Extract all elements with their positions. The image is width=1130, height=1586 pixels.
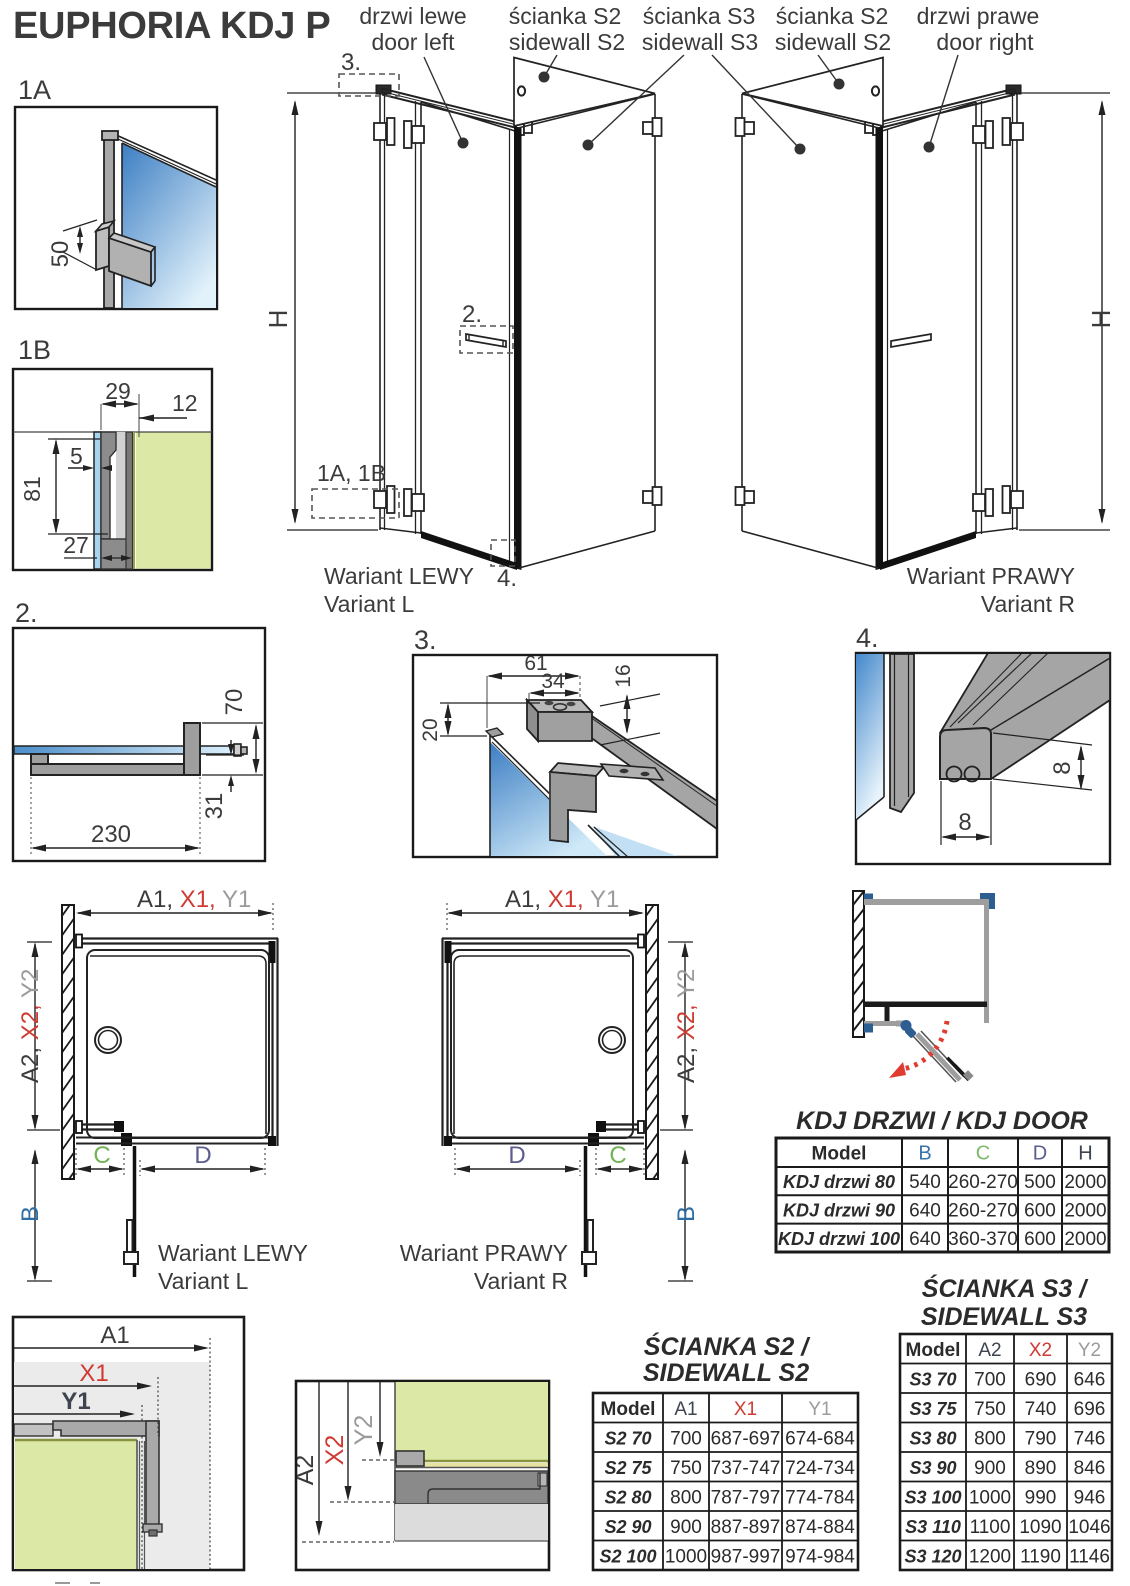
svg-text:S3 75: S3 75 (909, 1399, 957, 1419)
svg-text:X1: X1 (734, 1399, 757, 1420)
svg-text:2000: 2000 (1064, 1172, 1106, 1193)
svg-text:Variant R: Variant R (981, 591, 1075, 617)
svg-text:674-684: 674-684 (785, 1428, 855, 1449)
svg-text:890: 890 (1025, 1458, 1057, 1479)
svg-text:974-984: 974-984 (785, 1546, 855, 1567)
svg-text:Y2: Y2 (1078, 1340, 1101, 1361)
svg-text:D: D (1033, 1143, 1047, 1165)
svg-text:787-797: 787-797 (711, 1487, 781, 1508)
svg-text:Variant L: Variant L (158, 1268, 249, 1294)
svg-text:A1, X1, Y1: A1, X1, Y1 (505, 886, 619, 913)
svg-text:3.: 3. (414, 625, 437, 655)
svg-text:1146: 1146 (1069, 1546, 1110, 1567)
svg-text:900: 900 (974, 1458, 1006, 1479)
svg-text:1A: 1A (18, 75, 51, 105)
svg-text:ŚCIANKA S3 /: ŚCIANKA S3 / (922, 1274, 1089, 1303)
svg-text:16: 16 (612, 664, 635, 687)
svg-text:C: C (609, 1142, 626, 1169)
svg-text:Model: Model (906, 1340, 961, 1361)
svg-text:S3 120: S3 120 (904, 1546, 961, 1566)
svg-text:Model: Model (812, 1144, 867, 1165)
svg-text:A2, X2, Y2: A2, X2, Y2 (673, 969, 700, 1083)
svg-text:1046: 1046 (1068, 1517, 1110, 1538)
svg-text:A1, X1, Y1: A1, X1, Y1 (137, 886, 251, 913)
svg-text:S3 80: S3 80 (909, 1428, 956, 1448)
svg-text:Wariant PRAWY: Wariant PRAWY (907, 563, 1075, 589)
svg-text:Y2: Y2 (350, 1415, 378, 1446)
svg-text:S2 75: S2 75 (604, 1458, 652, 1478)
svg-text:1190: 1190 (1020, 1546, 1061, 1567)
svg-text:990: 990 (1025, 1487, 1057, 1508)
svg-text:ścianka S2: ścianka S2 (509, 3, 622, 29)
svg-text:SIDEWALL S2: SIDEWALL S2 (643, 1359, 809, 1387)
svg-text:846: 846 (1074, 1458, 1106, 1479)
svg-text:ŚCIANKA S2 /: ŚCIANKA S2 / (644, 1332, 811, 1361)
svg-text:750: 750 (974, 1399, 1006, 1420)
svg-text:260-270: 260-270 (948, 1200, 1018, 1221)
svg-text:A2, X2, Y2: A2, X2, Y2 (17, 969, 44, 1083)
svg-text:2000: 2000 (1064, 1229, 1106, 1250)
svg-text:1A, 1B: 1A, 1B (317, 460, 386, 486)
svg-text:874-884: 874-884 (785, 1517, 855, 1538)
svg-text:4.: 4. (497, 565, 517, 592)
svg-text:1B: 1B (18, 335, 51, 365)
svg-text:746: 746 (1074, 1428, 1106, 1449)
svg-text:Wariant LEWY: Wariant LEWY (158, 1240, 308, 1266)
svg-text:ścianka S2: ścianka S2 (776, 3, 889, 29)
svg-text:2.: 2. (15, 598, 38, 628)
svg-text:C: C (93, 1142, 110, 1169)
svg-text:2000: 2000 (1064, 1200, 1106, 1221)
svg-text:600: 600 (1024, 1229, 1056, 1250)
svg-text:887-897: 887-897 (711, 1517, 781, 1538)
svg-text:12: 12 (172, 390, 198, 416)
svg-text:KDJ DRZWI / KDJ DOOR: KDJ DRZWI / KDJ DOOR (796, 1107, 1088, 1135)
svg-text:H: H (1078, 1143, 1092, 1165)
svg-text:A1: A1 (100, 1322, 129, 1349)
svg-text:737-747: 737-747 (711, 1458, 781, 1479)
svg-text:drzwi prawe: drzwi prawe (917, 3, 1040, 29)
svg-text:640: 640 (909, 1229, 941, 1250)
svg-text:8: 8 (1049, 761, 1076, 774)
svg-text:600: 600 (1024, 1200, 1056, 1221)
svg-text:1200: 1200 (969, 1546, 1011, 1567)
svg-text:S3 90: S3 90 (909, 1458, 956, 1478)
svg-text:946: 946 (1074, 1487, 1106, 1508)
svg-text:1000: 1000 (969, 1487, 1011, 1508)
svg-text:696: 696 (1074, 1399, 1106, 1420)
svg-text:sidewall S2: sidewall S2 (509, 29, 625, 55)
svg-text:door right: door right (936, 29, 1034, 55)
svg-text:540: 540 (909, 1172, 941, 1193)
svg-text:A1: A1 (674, 1399, 697, 1420)
svg-text:1090: 1090 (1019, 1517, 1061, 1538)
svg-text:687-697: 687-697 (711, 1428, 781, 1449)
svg-text:3.: 3. (341, 49, 361, 76)
svg-text:drzwi lewe: drzwi lewe (359, 3, 466, 29)
svg-text:800: 800 (974, 1428, 1006, 1449)
svg-text:KDJ drzwi 80: KDJ drzwi 80 (783, 1172, 895, 1192)
svg-text:987-997: 987-997 (711, 1546, 781, 1567)
svg-text:X1: X1 (79, 1360, 108, 1387)
svg-text:B: B (673, 1206, 700, 1222)
svg-text:S3 110: S3 110 (905, 1517, 961, 1537)
svg-text:34: 34 (541, 670, 565, 693)
svg-text:700: 700 (670, 1428, 702, 1449)
svg-text:790: 790 (1025, 1428, 1057, 1449)
svg-text:Y1: Y1 (61, 1388, 90, 1415)
svg-text:8: 8 (958, 809, 971, 836)
svg-text:S2 100: S2 100 (599, 1546, 656, 1566)
svg-text:S3 100: S3 100 (904, 1487, 961, 1507)
svg-text:230: 230 (91, 821, 131, 848)
svg-text:X2: X2 (321, 1435, 349, 1466)
svg-text:800: 800 (670, 1487, 702, 1508)
svg-text:B: B (918, 1143, 931, 1165)
svg-text:5: 5 (70, 443, 83, 469)
svg-text:B: B (17, 1206, 44, 1222)
svg-text:81: 81 (19, 476, 45, 502)
svg-text:750: 750 (670, 1458, 702, 1479)
svg-text:700: 700 (974, 1369, 1006, 1390)
svg-text:KDJ drzwi 100: KDJ drzwi 100 (778, 1229, 900, 1249)
svg-text:Y1: Y1 (808, 1399, 831, 1420)
svg-text:S2 90: S2 90 (604, 1517, 651, 1537)
svg-text:740: 740 (1025, 1399, 1057, 1420)
svg-text:27: 27 (63, 532, 89, 558)
svg-text:S3 70: S3 70 (909, 1369, 956, 1389)
svg-text:70: 70 (221, 689, 248, 716)
svg-text:Variant L: Variant L (324, 591, 415, 617)
svg-text:500: 500 (1024, 1172, 1056, 1193)
svg-text:S2 70: S2 70 (604, 1428, 651, 1448)
svg-text:Variant R: Variant R (474, 1268, 568, 1294)
svg-text:640: 640 (909, 1200, 941, 1221)
svg-text:A2: A2 (978, 1340, 1001, 1361)
svg-text:H: H (263, 310, 293, 329)
svg-text:EUPHORIA KDJ P: EUPHORIA KDJ P (13, 5, 330, 47)
svg-text:774-784: 774-784 (785, 1487, 855, 1508)
svg-text:646: 646 (1074, 1369, 1106, 1390)
svg-text:20: 20 (419, 718, 442, 741)
svg-text:Model: Model (601, 1399, 656, 1420)
svg-text:50: 50 (47, 241, 74, 268)
svg-text:2.: 2. (462, 301, 482, 328)
svg-text:724-734: 724-734 (785, 1458, 855, 1479)
svg-text:Wariant LEWY: Wariant LEWY (324, 563, 474, 589)
svg-text:260-270: 260-270 (948, 1172, 1018, 1193)
svg-text:door left: door left (371, 29, 455, 55)
svg-text:360-370: 360-370 (948, 1229, 1018, 1250)
svg-text:D: D (194, 1142, 211, 1169)
svg-text:X2: X2 (1029, 1340, 1052, 1361)
svg-text:31: 31 (201, 793, 228, 820)
svg-text:1100: 1100 (970, 1517, 1011, 1538)
svg-text:sidewall S2: sidewall S2 (775, 29, 891, 55)
svg-text:sidewall S3: sidewall S3 (642, 29, 758, 55)
svg-text:S2 80: S2 80 (604, 1487, 651, 1507)
svg-text:29: 29 (105, 378, 131, 404)
svg-text:ścianka S3: ścianka S3 (643, 3, 756, 29)
svg-text:C: C (976, 1143, 990, 1165)
svg-text:Wariant PRAWY: Wariant PRAWY (400, 1240, 568, 1266)
svg-text:4.: 4. (856, 623, 879, 653)
svg-text:H: H (1086, 310, 1116, 329)
svg-text:690: 690 (1025, 1369, 1057, 1390)
svg-text:D: D (508, 1142, 525, 1169)
svg-text:1000: 1000 (665, 1546, 707, 1567)
svg-text:SIDEWALL S3: SIDEWALL S3 (921, 1303, 1087, 1331)
svg-text:900: 900 (670, 1517, 702, 1538)
svg-text:KDJ drzwi 90: KDJ drzwi 90 (783, 1200, 895, 1220)
